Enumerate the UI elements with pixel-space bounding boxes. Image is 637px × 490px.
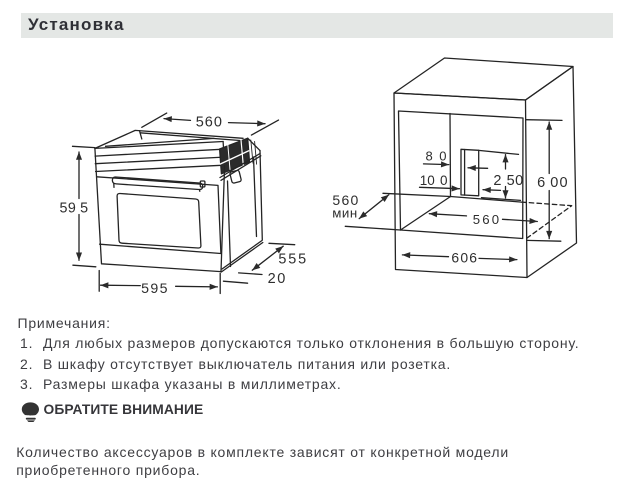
svg-text:560: 560 — [196, 114, 223, 130]
svg-text:10: 10 — [420, 173, 435, 188]
svg-text:606: 606 — [451, 250, 478, 266]
svg-text:2: 2 — [493, 173, 501, 189]
svg-text:5: 5 — [80, 200, 88, 216]
svg-text:6: 6 — [537, 175, 545, 191]
svg-text:560: 560 — [473, 212, 502, 227]
svg-text:59: 59 — [59, 200, 76, 216]
svg-text:50: 50 — [507, 173, 524, 189]
svg-text:мин: мин — [332, 205, 357, 220]
svg-text:0: 0 — [439, 149, 446, 164]
svg-text:00: 00 — [550, 175, 569, 191]
svg-text:0: 0 — [440, 173, 448, 188]
svg-text:20: 20 — [268, 271, 287, 287]
svg-text:595: 595 — [141, 281, 169, 297]
svg-text:8: 8 — [426, 149, 433, 164]
svg-text:555: 555 — [278, 252, 308, 268]
